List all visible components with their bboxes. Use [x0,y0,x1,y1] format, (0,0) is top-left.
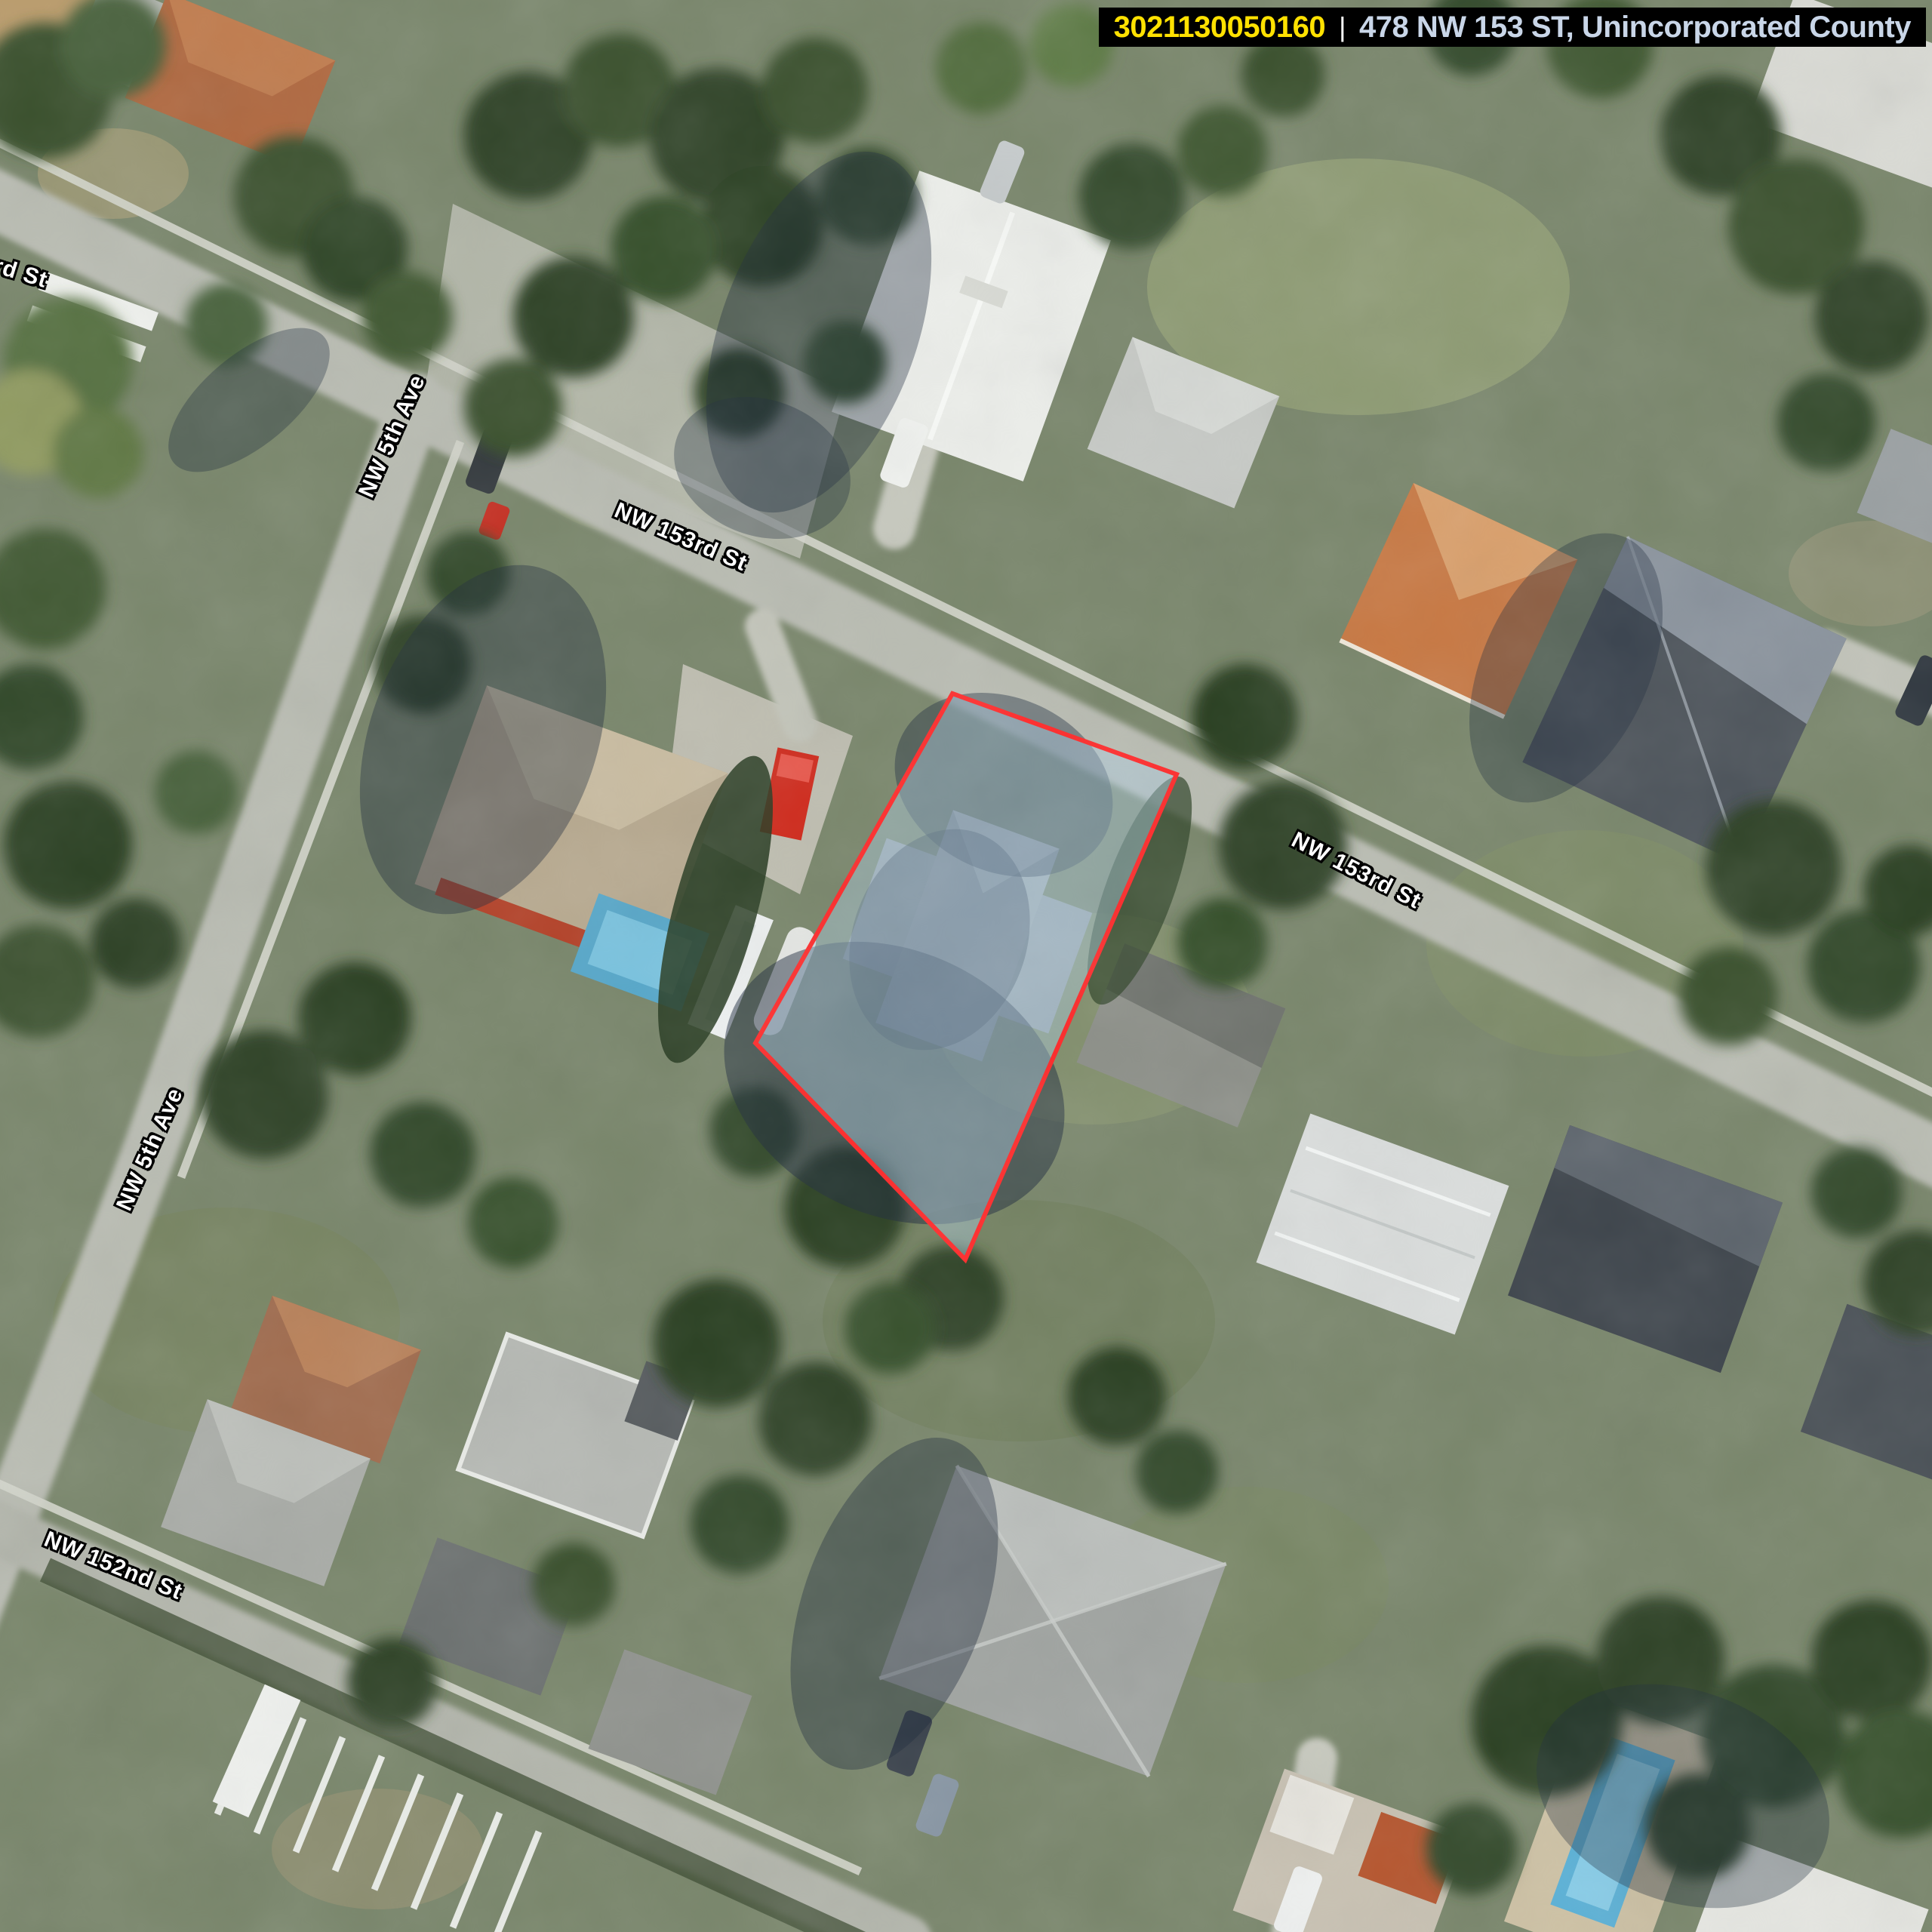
map-header-bar: 3021130050160 | 478 NW 153 ST, Unincorpo… [1099,8,1926,47]
header-separator: | [1339,11,1346,43]
parcel-address: 478 NW 153 ST, Unincorporated County [1359,11,1911,45]
aerial-map[interactable]: rd St NW 5th Ave NW 153rd St NW 153rd St… [0,0,1932,1932]
map-canvas [0,0,1932,1932]
imagery-noise [0,0,1932,1932]
parcel-id: 3021130050160 [1114,11,1326,45]
